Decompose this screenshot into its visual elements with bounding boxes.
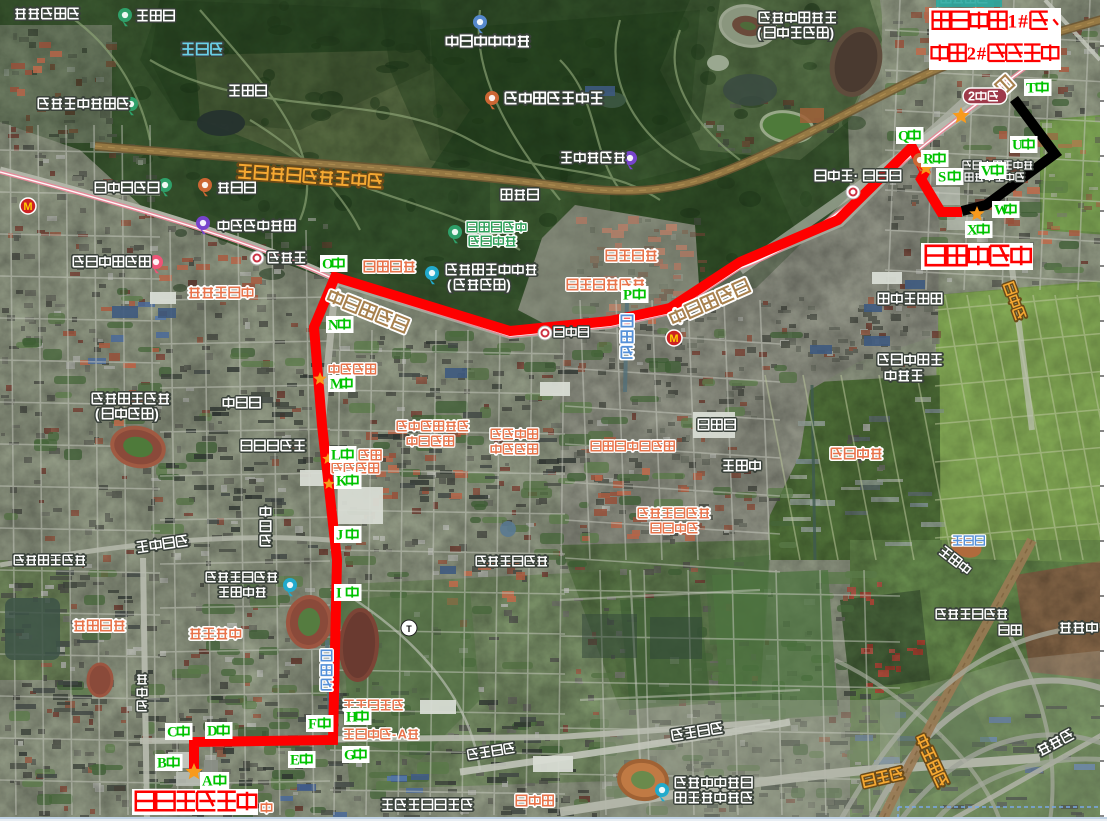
svg-text:M: M — [330, 376, 344, 392]
svg-text:D: D — [207, 723, 218, 739]
svg-text:T: T — [1026, 80, 1036, 96]
svg-text:(: ( — [757, 25, 762, 40]
svg-text:Q: Q — [898, 128, 909, 144]
svg-text:W: W — [994, 202, 1009, 218]
svg-text:C: C — [167, 724, 178, 740]
svg-text:E: E — [290, 752, 300, 768]
svg-text:(: ( — [447, 277, 452, 292]
svg-text:X: X — [967, 222, 978, 238]
svg-text:N: N — [328, 317, 339, 333]
svg-text:-: - — [392, 728, 396, 742]
svg-text:B: B — [157, 755, 167, 771]
svg-text:K: K — [336, 473, 348, 489]
svg-text:(: ( — [95, 406, 100, 421]
svg-text:): ) — [830, 25, 835, 40]
svg-text:U: U — [1012, 137, 1023, 153]
svg-text:L: L — [331, 447, 341, 463]
svg-text:M: M — [23, 201, 32, 213]
svg-text:2: 2 — [967, 43, 976, 63]
svg-text:F: F — [308, 716, 317, 732]
svg-text:V: V — [981, 163, 992, 179]
svg-text:O: O — [322, 256, 333, 272]
svg-text:): ) — [154, 406, 159, 421]
svg-text:S: S — [938, 169, 946, 185]
svg-text:A: A — [398, 728, 407, 742]
svg-text:#: # — [977, 43, 986, 63]
svg-text:M: M — [669, 333, 678, 345]
svg-text:J: J — [336, 527, 343, 543]
svg-text:A: A — [202, 773, 213, 789]
svg-text:·: · — [854, 168, 859, 183]
svg-text:P: P — [623, 287, 632, 303]
svg-text:1: 1 — [1008, 11, 1018, 32]
svg-text:): ) — [506, 277, 511, 292]
svg-text:I: I — [336, 585, 342, 601]
svg-text:G: G — [344, 747, 356, 763]
svg-text:#: # — [1018, 11, 1028, 32]
svg-text:2: 2 — [968, 90, 975, 104]
svg-text:H: H — [346, 709, 358, 725]
svg-text:R: R — [923, 151, 934, 167]
svg-text:T: T — [406, 624, 412, 634]
